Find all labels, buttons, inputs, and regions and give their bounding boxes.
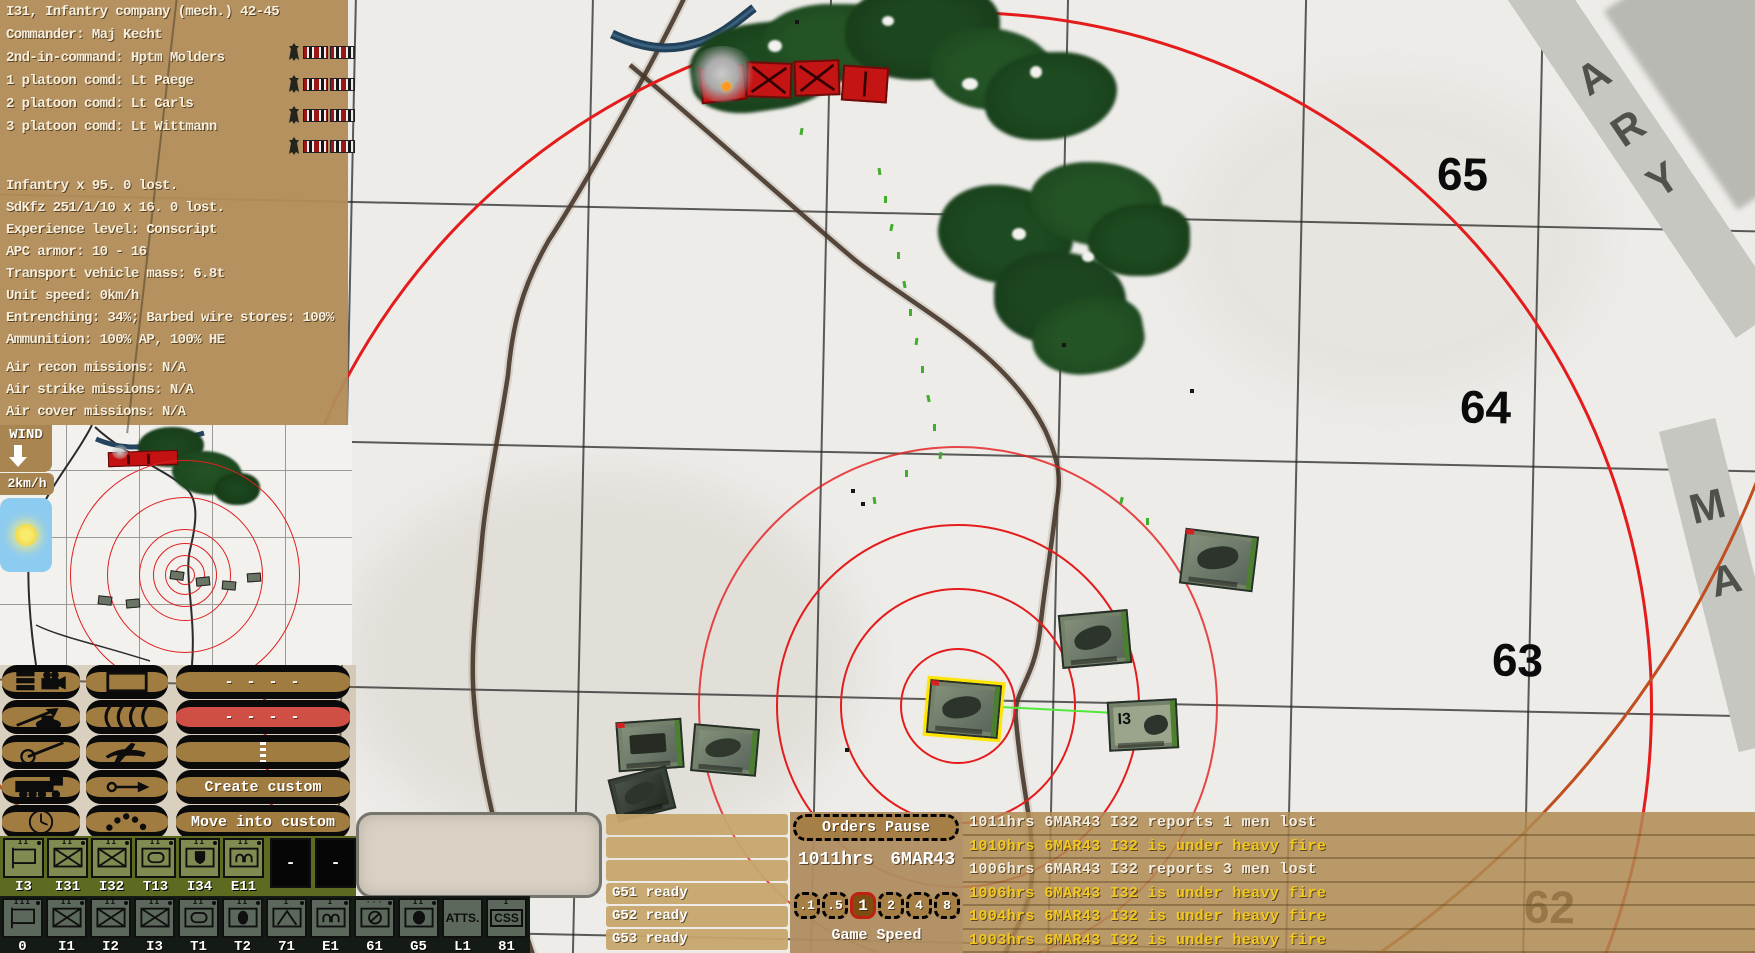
unit-title: I31, Infantry company (mech.) 42-45 bbox=[6, 4, 279, 20]
unit-button-l1[interactable]: ATTS. L1 bbox=[442, 898, 483, 953]
status-bar[interactable] bbox=[606, 860, 788, 881]
medal-row bbox=[287, 105, 355, 125]
medal-row bbox=[287, 74, 355, 94]
wind-indicator: WIND bbox=[0, 425, 52, 472]
speed-buttons: .1 .5 1 2 4 8 bbox=[794, 892, 960, 919]
status-bar[interactable] bbox=[606, 814, 788, 835]
empty-slot-button[interactable]: - bbox=[270, 838, 311, 888]
shield-symbol-icon bbox=[183, 846, 217, 870]
enemy-unit[interactable] bbox=[690, 723, 760, 777]
log-message: 1003hrs 6MAR43 I32 is under heavy fire bbox=[963, 930, 1755, 953]
stat-mass: Transport vehicle mass: 6.8t bbox=[6, 266, 224, 282]
stat-armor: APC armor: 10 - 16 bbox=[6, 244, 146, 260]
grid-label-65: 65 bbox=[1437, 147, 1489, 202]
stat-ammo: Ammunition: 100% AP, 100% HE bbox=[6, 332, 224, 348]
unit-button-0[interactable]: III 0 bbox=[2, 898, 43, 953]
platoon-1-comd: 1 platoon comd: Lt Paege bbox=[6, 73, 193, 89]
unit-button-t13[interactable]: II T13 bbox=[135, 838, 176, 895]
order-mines-button[interactable] bbox=[86, 805, 168, 839]
enemy-unit-i3[interactable]: I3 bbox=[1107, 698, 1180, 752]
ribbon-bar bbox=[330, 109, 355, 122]
message-log: 1011hrs 6MAR43 I32 reports 1 men lost 10… bbox=[963, 812, 1755, 953]
unit-button-71[interactable]: I 71 bbox=[266, 898, 307, 953]
fire-effect bbox=[722, 82, 731, 91]
wind-label: WIND bbox=[0, 425, 52, 443]
wind-speed: 2km/h bbox=[0, 473, 54, 495]
unit-button-e11[interactable]: II E11 bbox=[223, 838, 264, 895]
clock-time: 1011hrs bbox=[798, 850, 874, 870]
order-squad-button[interactable] bbox=[2, 665, 80, 699]
medal-icon bbox=[287, 105, 301, 125]
unit-button-81[interactable]: I CSS 81 bbox=[486, 898, 527, 953]
air-strike: Air strike missions: N/A bbox=[6, 382, 193, 398]
unit-map-label: I3 bbox=[1117, 711, 1131, 730]
recon-symbol-icon bbox=[402, 906, 436, 930]
armor-symbol-icon bbox=[139, 846, 173, 870]
stat-experience: Experience level: Conscript bbox=[6, 222, 217, 238]
selected-unit[interactable] bbox=[926, 679, 1002, 739]
stat-speed: Unit speed: 0km/h bbox=[6, 288, 139, 304]
weather-box bbox=[0, 498, 52, 572]
create-custom-button[interactable]: Create custom bbox=[176, 770, 350, 804]
squad-camera-icon bbox=[12, 669, 70, 695]
sun-icon bbox=[15, 524, 37, 546]
halftrack-icon bbox=[12, 773, 70, 801]
medal-icon bbox=[287, 74, 301, 94]
unit-button-t1[interactable]: II T1 bbox=[178, 898, 219, 953]
mines-icon bbox=[99, 810, 155, 834]
infantry-symbol-icon bbox=[95, 846, 129, 870]
speed-button-4[interactable]: 4 bbox=[906, 892, 932, 919]
unit-button-g5[interactable]: II G5 bbox=[398, 898, 439, 953]
battalion-unit-bar: III 0 II I1 II I2 II I3 II T1 II bbox=[0, 896, 530, 953]
infantry-symbol-icon bbox=[94, 906, 128, 930]
platoon-2-comd: 2 platoon comd: Lt Carls bbox=[6, 96, 193, 112]
status-bar-g51[interactable]: G51 ready bbox=[606, 883, 788, 904]
hq-symbol-icon bbox=[6, 906, 40, 930]
order-airstrike-button[interactable] bbox=[86, 735, 168, 769]
platoon-3-comd: 3 platoon comd: Lt Wittmann bbox=[6, 119, 217, 135]
grid-label-63: 63 bbox=[1492, 633, 1544, 688]
ribbon-bar bbox=[303, 109, 328, 122]
medal-row bbox=[287, 136, 355, 156]
unit-button-i1[interactable]: II I1 bbox=[46, 898, 87, 953]
order-palette: - - - - - - - - Create custom Move into … bbox=[0, 665, 356, 837]
support-status-bars: G51 ready G52 ready G53 ready bbox=[606, 812, 788, 953]
anti-tank-icon bbox=[12, 703, 70, 731]
smoke-effect bbox=[686, 46, 758, 102]
commander: Commander: Maj Kecht bbox=[6, 27, 162, 43]
log-message: 1004hrs 6MAR43 I32 is under heavy fire bbox=[963, 906, 1755, 930]
clock-display: 1011hrs 6MAR43 bbox=[790, 850, 963, 870]
unit-button-i31[interactable]: II I31 bbox=[47, 838, 88, 895]
ribbon-bar bbox=[330, 46, 355, 59]
stat-infantry: Infantry x 95. 0 lost. bbox=[6, 178, 178, 194]
speed-button-2[interactable]: 2 bbox=[878, 892, 904, 919]
sound-waves-icon bbox=[99, 703, 155, 731]
enemy-unit[interactable] bbox=[1058, 609, 1132, 669]
airplane-icon bbox=[99, 739, 155, 765]
ribbon-bar bbox=[303, 78, 328, 91]
unit-button-i34[interactable]: II I34 bbox=[179, 838, 220, 895]
order-transport-button[interactable] bbox=[2, 770, 80, 804]
selection-info-box bbox=[356, 812, 602, 898]
air-cover: Air cover missions: N/A bbox=[6, 404, 185, 420]
artillery-gun-icon bbox=[12, 738, 70, 766]
air-recon: Air recon missions: N/A bbox=[6, 360, 185, 376]
empty-slot-button[interactable]: - bbox=[315, 838, 356, 888]
log-message: 1011hrs 6MAR43 I32 reports 1 men lost bbox=[963, 812, 1755, 836]
unit-button-61[interactable]: ··· 61 bbox=[354, 898, 395, 953]
unit-info-panel: I31, Infantry company (mech.) 42-45 Comm… bbox=[0, 0, 348, 425]
status-bar[interactable] bbox=[606, 837, 788, 858]
game-screen: A R Y M A bbox=[0, 0, 1755, 953]
speed-button-05[interactable]: .5 bbox=[822, 892, 848, 919]
hq-symbol-icon bbox=[7, 846, 41, 870]
orders-pause-button[interactable]: Orders Pause bbox=[793, 814, 959, 841]
order-frame-button[interactable] bbox=[86, 665, 168, 699]
order-sound-button[interactable] bbox=[86, 700, 168, 734]
ribbon-bar bbox=[303, 140, 328, 153]
log-message: 1010hrs 6MAR43 I32 is under heavy fire bbox=[963, 836, 1755, 860]
grid-label-64: 64 bbox=[1460, 380, 1512, 435]
speed-button-01[interactable]: .1 bbox=[794, 892, 820, 919]
wind-down-arrow-icon bbox=[14, 445, 22, 457]
time-control-panel: Orders Pause 1011hrs 6MAR43 .1 .5 1 2 4 … bbox=[790, 812, 963, 953]
stat-vehicles: SdKfz 251/1/10 x 16. 0 lost. bbox=[6, 200, 224, 216]
armor-symbol-icon bbox=[182, 906, 216, 930]
unit-button-t2[interactable]: II T2 bbox=[222, 898, 263, 953]
unit-button-i32[interactable]: II I32 bbox=[91, 838, 132, 895]
order-entrench-button[interactable] bbox=[86, 770, 168, 804]
unit-button-e1[interactable]: I E1 bbox=[310, 898, 351, 953]
medal-icon bbox=[287, 136, 301, 156]
friendly-unit[interactable] bbox=[841, 64, 889, 103]
custom-slot-button-3[interactable] bbox=[176, 735, 350, 769]
status-bar-g53[interactable]: G53 ready bbox=[606, 929, 788, 950]
unit-button-i3b[interactable]: II I3 bbox=[134, 898, 175, 953]
artillery-symbol-icon bbox=[270, 906, 304, 930]
frame-icon bbox=[99, 670, 155, 694]
log-message: 1006hrs 6MAR43 I32 is under heavy fire bbox=[963, 883, 1755, 907]
ribbon-bar bbox=[330, 78, 355, 91]
unit-button-i2[interactable]: II I2 bbox=[90, 898, 131, 953]
medal-icon bbox=[287, 42, 301, 62]
log-message: 1006hrs 6MAR43 I32 reports 3 men lost bbox=[963, 859, 1755, 883]
custom-slot-button-2[interactable]: - - - - bbox=[176, 700, 350, 734]
second-in-command: 2nd-in-command: Hptm Molders bbox=[6, 50, 224, 66]
shovel-icon bbox=[99, 775, 155, 799]
mortar-symbol-icon bbox=[358, 906, 392, 930]
infantry-symbol-icon bbox=[138, 906, 172, 930]
order-timer-button[interactable] bbox=[2, 805, 80, 839]
status-bar-g52[interactable]: G52 ready bbox=[606, 906, 788, 927]
custom-slot-button-1[interactable]: - - - - bbox=[176, 665, 350, 699]
move-into-custom-button[interactable]: Move into custom bbox=[176, 805, 350, 839]
enemy-unit[interactable] bbox=[1179, 528, 1259, 593]
friendly-unit[interactable] bbox=[793, 59, 840, 97]
stat-entrenching: Entrenching: 34%; Barbed wire stores: 10… bbox=[6, 310, 334, 326]
infantry-symbol-icon bbox=[51, 846, 85, 870]
unit-button-i3[interactable]: II I3 bbox=[3, 838, 44, 895]
game-speed-label: Game Speed bbox=[790, 927, 963, 944]
medal-row bbox=[287, 42, 355, 62]
ribbon-bar bbox=[330, 140, 355, 153]
clock-date: 6MAR43 bbox=[890, 850, 955, 870]
clock-icon bbox=[26, 808, 56, 836]
engineer-symbol-icon bbox=[227, 846, 261, 870]
speed-button-1[interactable]: 1 bbox=[850, 892, 876, 919]
enemy-unit[interactable] bbox=[615, 718, 684, 772]
order-antitank-button[interactable] bbox=[2, 700, 80, 734]
minimap-smoke bbox=[112, 445, 128, 459]
infantry-symbol-icon bbox=[50, 906, 84, 930]
mech-symbol-icon bbox=[226, 906, 260, 930]
speed-button-8[interactable]: 8 bbox=[934, 892, 960, 919]
ribbon-bar bbox=[303, 46, 328, 59]
minimap[interactable] bbox=[0, 425, 352, 665]
stacked-dots-icon bbox=[260, 742, 266, 762]
company-unit-bar: II I3 II I31 II I32 II T13 II I34 II bbox=[0, 836, 356, 897]
engineer-symbol-icon bbox=[314, 906, 348, 930]
order-artillery-button[interactable] bbox=[2, 735, 80, 769]
